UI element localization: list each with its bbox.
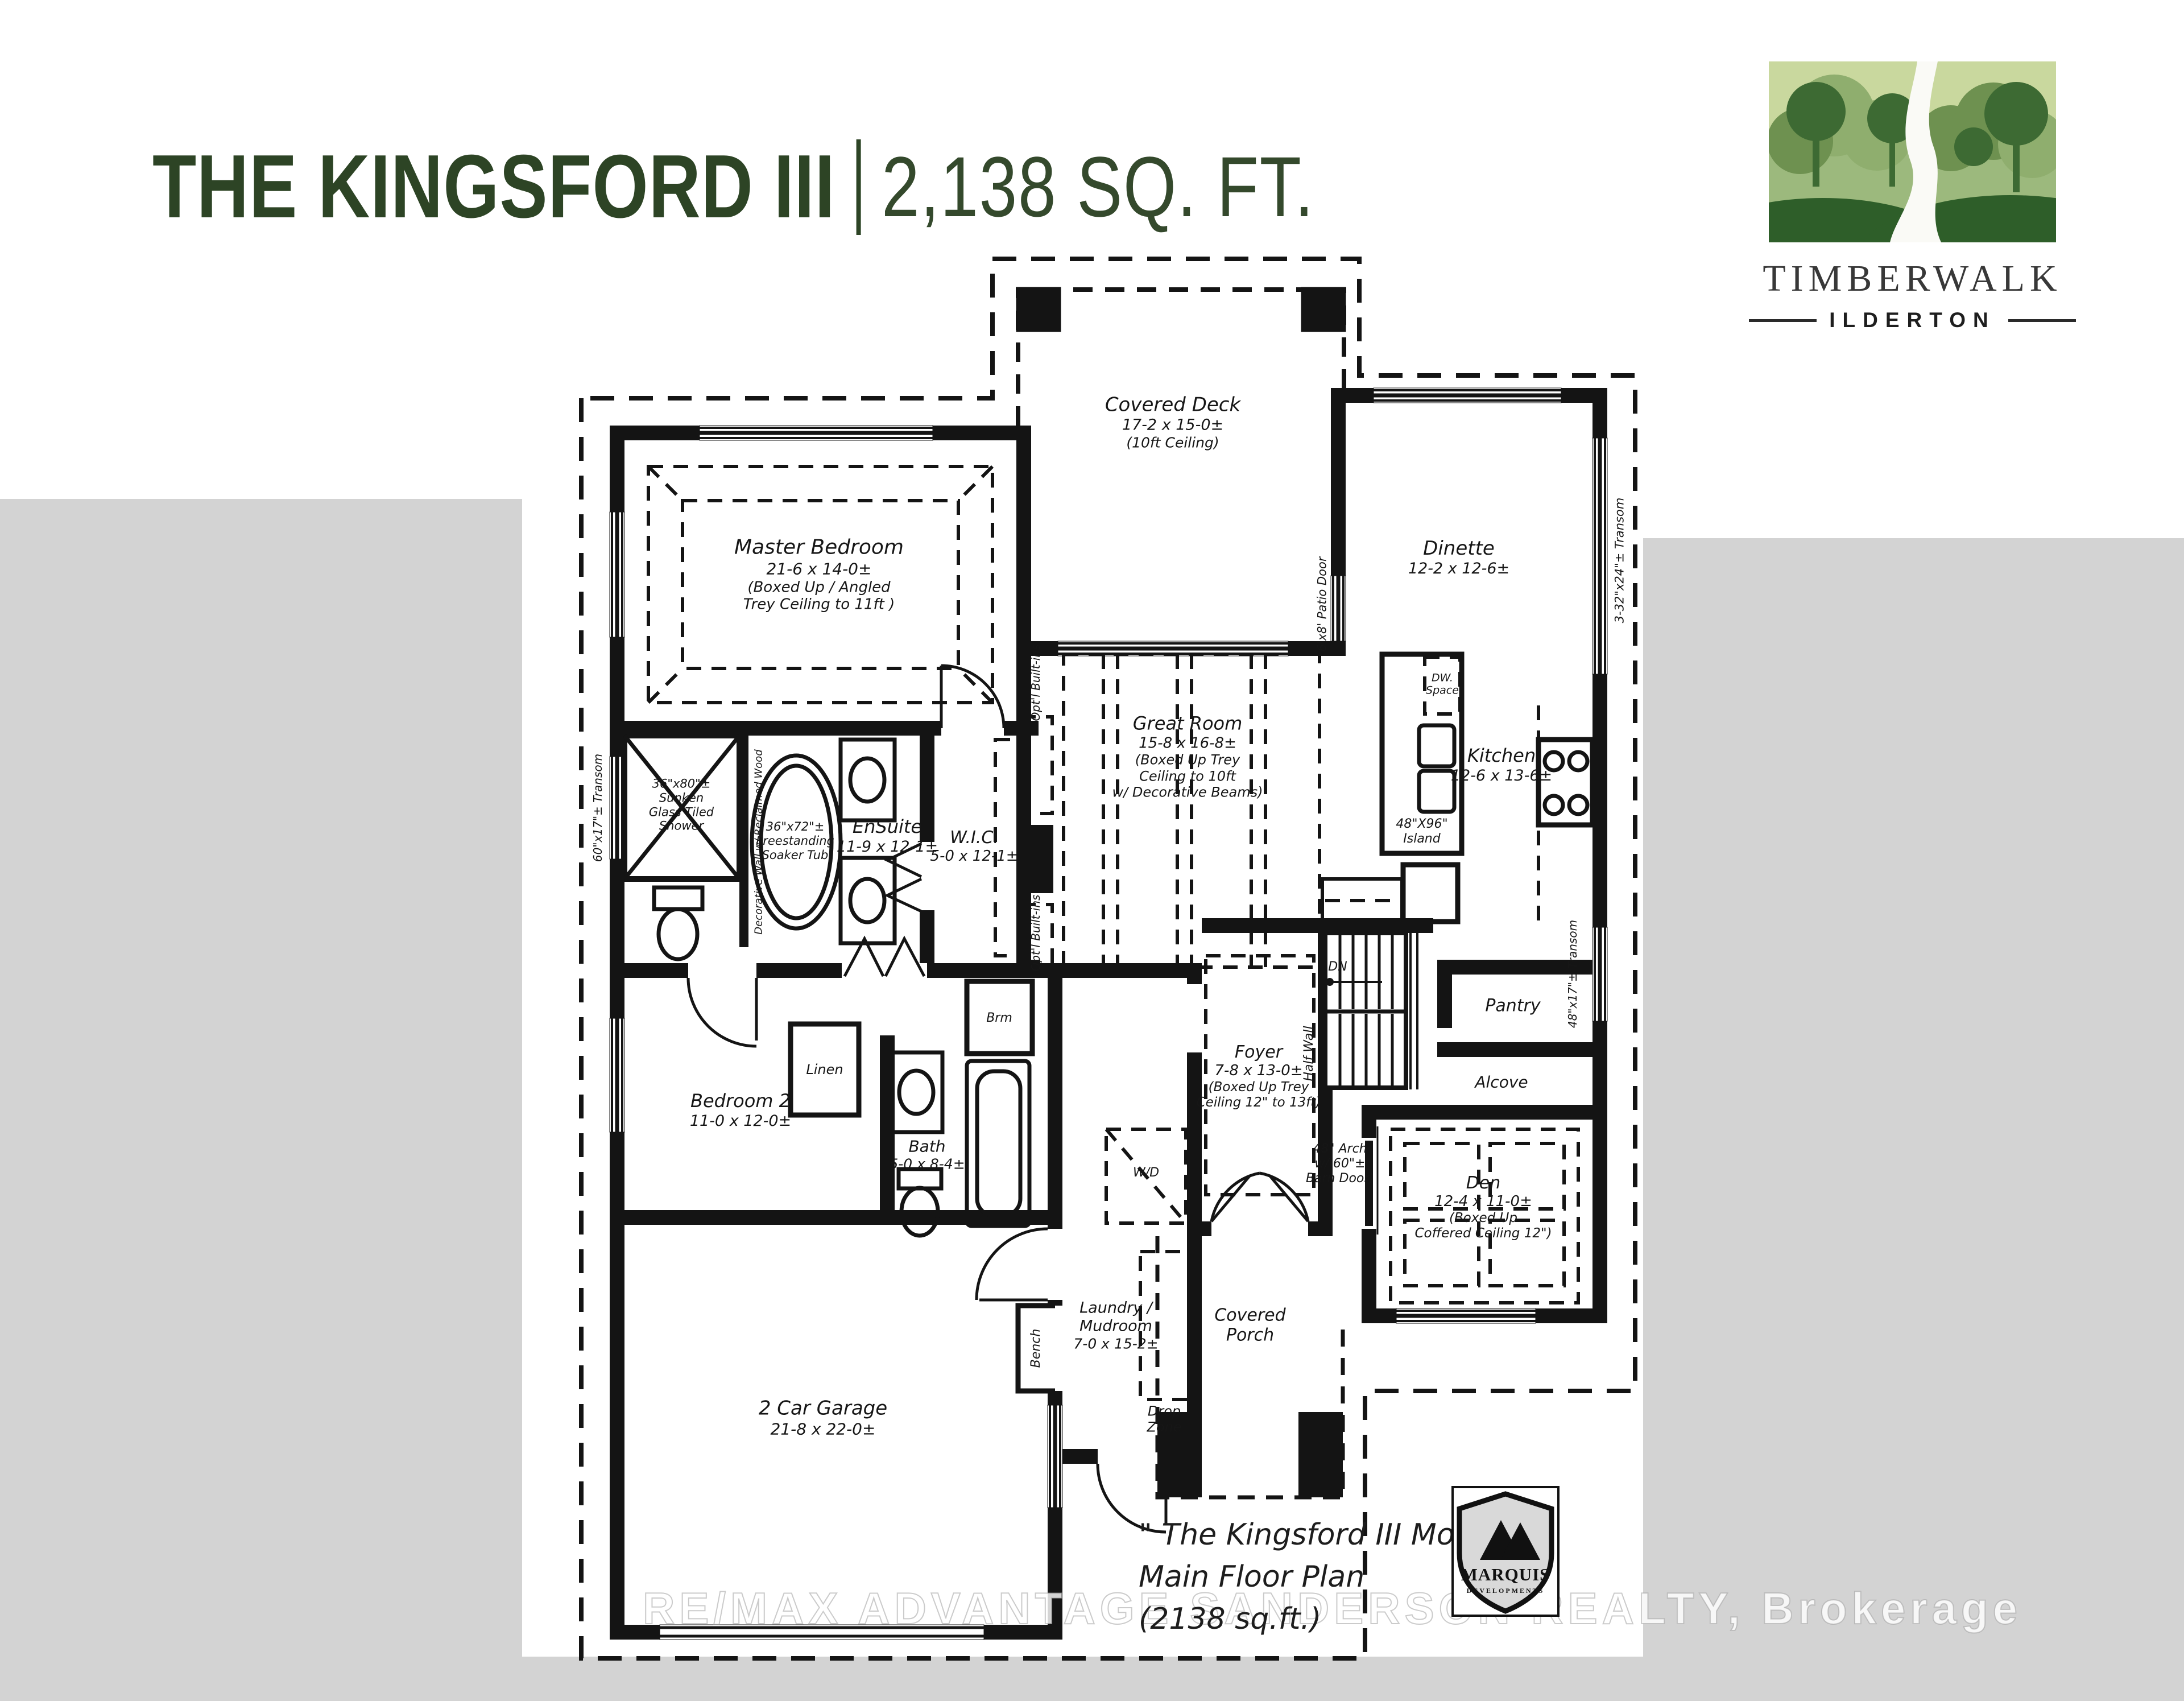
shower-line: Glass Tiled: [649, 805, 714, 819]
label-island: 48"X96" Island: [1396, 817, 1447, 847]
room-dim: 21-6 x 14-0±: [734, 560, 904, 579]
floor-plan-sheet: THE KINGSFORD III 2,138 SQ. FT.: [0, 0, 2184, 1701]
shower-line: Sunken: [649, 791, 714, 805]
room-name: Laundry /: [1073, 1299, 1158, 1317]
header: THE KINGSFORD III 2,138 SQ. FT.: [152, 135, 1314, 238]
timberwalk-logo: TIMBERWALK ILDERTON: [1749, 61, 2076, 332]
label-master-bedroom: Master Bedroom 21-6 x 14-0± (Boxed Up / …: [734, 536, 904, 614]
label-transom-ensuite: 60"x17"± Transom: [591, 754, 605, 862]
label-pantry: Pantry: [1485, 996, 1540, 1015]
label-garage: 2 Car Garage 21-8 x 22-0±: [759, 1397, 887, 1438]
room-note: Trey Ceiling to 11ft ): [734, 596, 904, 614]
room-note: (Boxed Up: [1414, 1211, 1552, 1226]
gray-panel-left: [0, 499, 522, 1701]
brand-location-row: ILDERTON: [1749, 308, 2076, 332]
label-dinette: Dinette 12-2 x 12-6±: [1408, 537, 1509, 578]
label-half-wall: Half Wall: [1302, 1026, 1317, 1081]
label-covered-porch: Covered Porch: [1214, 1306, 1285, 1346]
room-dim: 21-8 x 22-0±: [759, 1420, 887, 1439]
wd-label: W/D: [1133, 1166, 1159, 1180]
room-dim: 7-0 x 15-2±: [1073, 1335, 1158, 1352]
brand-name: TIMBERWALK: [1749, 257, 2076, 300]
arch-line: 48" Arch: [1306, 1142, 1374, 1157]
room-name: Linen: [806, 1062, 843, 1077]
island-word: Island: [1396, 832, 1447, 847]
eaves-dashed-outline: [581, 259, 1635, 1658]
room-name: Bath: [889, 1137, 965, 1156]
room-name: Kitchen: [1451, 745, 1552, 767]
tub-line: Freestanding: [756, 834, 834, 848]
room-name: EnSuite: [837, 816, 938, 838]
room-name: Pantry: [1485, 996, 1540, 1015]
staircase: [1325, 933, 1417, 1089]
room-note: w/ Decorative Beams): [1112, 784, 1263, 800]
tub-line: 36"x72"±: [756, 820, 834, 834]
arch-line: Barn Door): [1306, 1171, 1374, 1186]
page-title: THE KINGSFORD III: [152, 135, 835, 238]
label-den: Den 12-4 x 11-0± (Boxed Up Coffered Ceil…: [1414, 1173, 1552, 1241]
room-note: (10ft Ceiling): [1105, 434, 1240, 451]
bench-label: Bench: [1029, 1329, 1044, 1368]
label-drop-zone: Drop Zone: [1147, 1403, 1181, 1436]
rule-right: [2008, 319, 2076, 322]
marquis-logo: MARQUIS DEVELOPMENTS: [1451, 1486, 1560, 1617]
label-covered-deck: Covered Deck 17-2 x 15-0± (10ft Ceiling): [1105, 393, 1240, 451]
island-size: 48"X96": [1396, 817, 1447, 832]
deck-post: [1016, 287, 1061, 332]
deck-post: [1301, 287, 1346, 332]
shower-line: 36"x80"±: [649, 777, 714, 791]
timberwalk-scene-icon: [1749, 61, 2076, 249]
room-dim: 15-8 x 16-8±: [1112, 734, 1263, 752]
transom-note: 60"x17"± Transom: [591, 754, 605, 862]
dw-line: DW.: [1426, 672, 1459, 684]
room-name: Dinette: [1408, 537, 1509, 560]
transom-note: 48"x17"± Transom: [1566, 920, 1580, 1028]
room-name: Great Room: [1112, 713, 1263, 734]
room-dim: 12-2 x 12-6±: [1408, 560, 1509, 578]
shower-line: Shower: [649, 819, 714, 833]
label-dw-space: DW. Space: [1426, 672, 1459, 697]
label-bedroom2: Bedroom 2 11-0 x 12-0±: [690, 1091, 791, 1130]
dropzone-line: Drop: [1147, 1403, 1181, 1419]
label-great-room: Great Room 15-8 x 16-8± (Boxed Up Trey C…: [1112, 713, 1263, 800]
dw-line: Space: [1426, 684, 1459, 697]
label-shower: 36"x80"± Sunken Glass Tiled Shower: [649, 777, 714, 833]
room-note: (Boxed Up Trey: [1197, 1080, 1321, 1095]
room-dim: 17-2 x 15-0±: [1105, 416, 1240, 434]
room-note: (Boxed Up / Angled: [734, 579, 904, 596]
title-divider: [856, 139, 861, 235]
label-alcove: Alcove: [1475, 1072, 1528, 1091]
fixtures: [624, 654, 1592, 1497]
label-builtins-lower: Opt'l Built-ins: [1029, 895, 1043, 972]
label-feature-wall: Decorative Wall w/ Reclaimed Wood: [752, 749, 764, 934]
room-name: Den: [1414, 1173, 1552, 1193]
label-dn: DN: [1328, 960, 1347, 975]
transom-note: 3-32"x24"± Transom: [1613, 498, 1627, 624]
builder-name: MARQUIS: [1461, 1564, 1550, 1584]
tub-line: Soaker Tub: [756, 848, 834, 862]
builtins-note: Opt'l Built-ins: [1029, 645, 1043, 721]
builtins-note: Opt'l Built-ins: [1029, 895, 1043, 972]
room-name: Covered Deck: [1105, 393, 1240, 416]
brand-location: ILDERTON: [1829, 308, 1995, 332]
room-dim: 5-0 x 8-4±: [889, 1156, 965, 1173]
label-patio-door: 6'x8' Patio Door: [1316, 557, 1330, 652]
room-name: Bedroom 2: [690, 1091, 791, 1112]
room-name: Master Bedroom: [734, 536, 904, 560]
stairs-dn: DN: [1328, 960, 1347, 975]
room-name: Mudroom: [1073, 1317, 1158, 1335]
room-dim: 11-9 x 12-1±: [837, 838, 938, 856]
label-soaker-tub: 36"x72"± Freestanding Soaker Tub: [756, 820, 834, 862]
arch-line: w/ 60"±: [1306, 1157, 1374, 1171]
label-arch-barn-door: 48" Arch w/ 60"± Barn Door): [1306, 1142, 1374, 1186]
label-kitchen: Kitchen 12-6 x 13-6±: [1451, 745, 1552, 785]
label-bench: Bench: [1029, 1329, 1044, 1368]
floor-plan-drawing: [569, 250, 1649, 1667]
dropzone-line: Zone: [1147, 1419, 1181, 1435]
label-wic: W.I.C. 5-0 x 12-1±: [930, 828, 1018, 865]
room-name: Porch: [1214, 1326, 1285, 1345]
room-dim: 12-6 x 13-6±: [1451, 767, 1552, 785]
half-wall: Half Wall: [1302, 1026, 1317, 1081]
room-note: (Boxed Up Trey: [1112, 752, 1263, 768]
label-transom-kitchen: 48"x17"± Transom: [1566, 920, 1580, 1028]
gray-panel-right: [1643, 538, 2184, 1701]
label-bath: Bath 5-0 x 8-4±: [889, 1137, 965, 1173]
label-transom-dinette: 3-32"x24"± Transom: [1613, 498, 1627, 624]
room-name: W.I.C.: [930, 828, 1018, 848]
marquis-shield-icon: MARQUIS DEVELOPMENTS: [1451, 1486, 1560, 1617]
room-dim: 12-4 x 11-0±: [1414, 1193, 1552, 1211]
square-footage: 2,138 SQ. FT.: [882, 138, 1314, 236]
room-name: Covered: [1214, 1306, 1285, 1326]
room-note: Ceiling 12" to 13ft): [1197, 1095, 1321, 1110]
label-laundry-mudroom: Laundry / Mudroom 7-0 x 15-2±: [1073, 1299, 1158, 1352]
room-note: Ceiling to 10ft: [1112, 768, 1263, 784]
feature-wall-note: Decorative Wall w/ Reclaimed Wood: [752, 749, 764, 934]
label-ensuite: EnSuite 11-9 x 12-1±: [837, 816, 938, 856]
patio-door-note: 6'x8' Patio Door: [1316, 557, 1330, 652]
room-dim: 11-0 x 12-0±: [690, 1112, 791, 1130]
label-brm: Brm: [986, 1011, 1012, 1026]
label-builtins-upper: Opt'l Built-ins: [1029, 645, 1043, 721]
rule-left: [1749, 319, 1817, 322]
room-dim: 5-0 x 12-1±: [930, 848, 1018, 865]
room-note: Coffered Ceiling 12"): [1414, 1226, 1552, 1241]
room-name: Brm: [986, 1011, 1012, 1026]
room-name: 2 Car Garage: [759, 1397, 887, 1419]
label-wd: W/D: [1133, 1166, 1159, 1180]
label-linen: Linen: [806, 1062, 843, 1077]
room-name: Alcove: [1475, 1072, 1528, 1091]
builder-sub: DEVELOPMENTS: [1467, 1587, 1545, 1595]
